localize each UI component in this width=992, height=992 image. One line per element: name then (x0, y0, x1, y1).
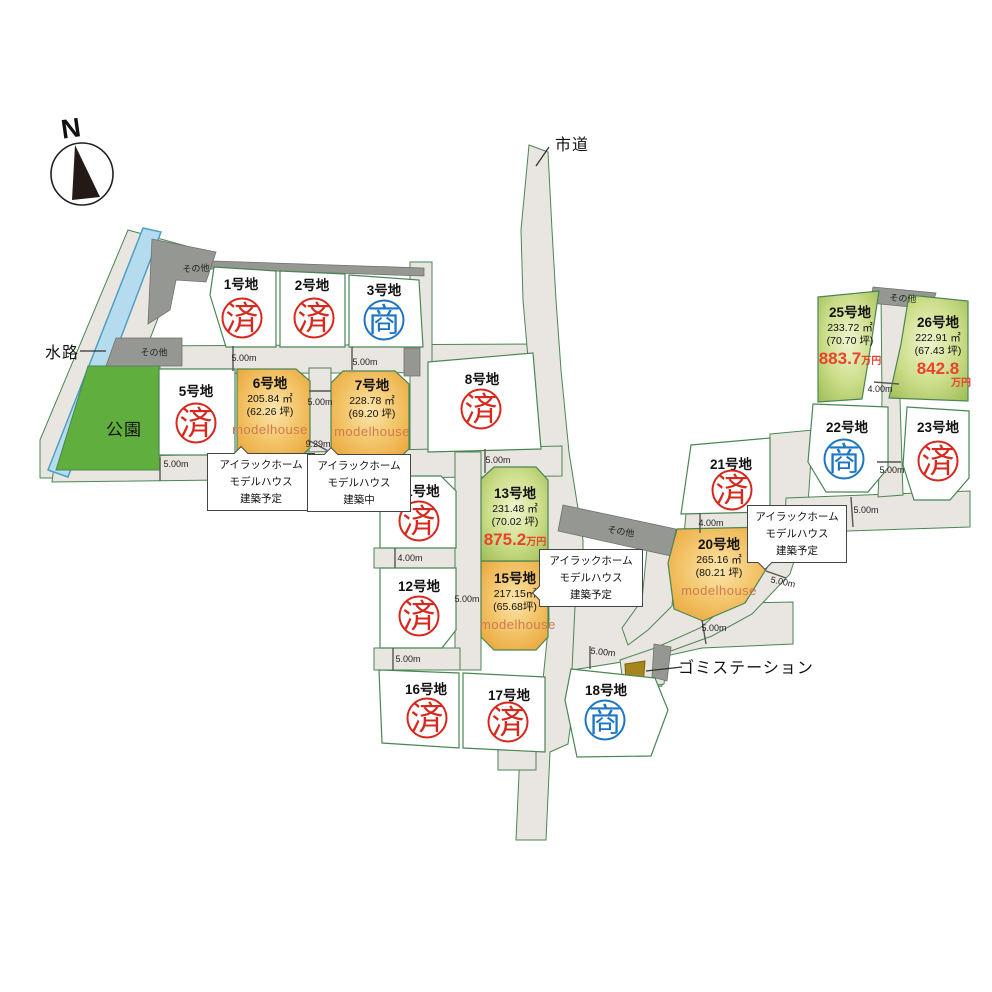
lot-18-label: 18号地 (585, 683, 627, 700)
lot-12-status-stamp: 済 (399, 596, 440, 637)
lot-1-status-stamp: 済 (222, 298, 263, 339)
modelhouse-text: modelhouse (677, 583, 761, 599)
lot-16-label: 16号地 (405, 682, 447, 699)
measurement-label: 5.00m (231, 353, 256, 363)
gray-area-lot8 (404, 348, 420, 376)
other-area-label: その他 (889, 291, 917, 306)
measurement-label: 5.00m (395, 654, 420, 664)
measurement-label: 4.00m (867, 384, 892, 394)
measurement-label: 9.29m (305, 439, 330, 449)
lot-23-status-stamp: 済 (918, 441, 959, 482)
callout-lot15: アイラックホーム モデルハウス 建築予定 (539, 549, 643, 607)
measurement-label: 5.00m (853, 505, 878, 515)
lot-2-status-stamp: 済 (294, 298, 335, 339)
lot-18-status-stamp: 商 (585, 700, 626, 741)
callout-lot20: アイラックホーム モデルハウス 建築予定 (747, 505, 847, 563)
lot-23-label: 23号地 (917, 420, 959, 437)
measurement-label: 4.00m (397, 553, 422, 563)
lot-8-label: 8号地 (465, 372, 500, 389)
modelhouse-text: modelhouse (230, 422, 310, 438)
city-road-label: 市道 (555, 131, 589, 155)
lot-5-status-stamp: 済 (176, 403, 217, 444)
lot-13-details: 13号地 231.48 ㎡ (70.02 坪) 875.2万円 (480, 486, 550, 549)
measurement-label: 5.00m (454, 594, 479, 604)
lot-3-label: 3号地 (367, 283, 402, 300)
compass-north-label: N (59, 112, 83, 145)
measurement-label: 5.00m (352, 357, 377, 367)
callout-lot6: アイラックホーム モデルハウス 建築予定 (207, 453, 315, 511)
lot-22-status-stamp: 商 (824, 439, 865, 480)
lot-7-details: 7号地 228.78 ㎡ (69.20 坪) modelhouse (332, 378, 412, 440)
lot-1-label: 1号地 (224, 277, 259, 294)
measurement-label: 5.00m (307, 397, 332, 407)
measurement-label: 5.00m (485, 455, 510, 465)
lot-3-status-stamp: 商 (364, 300, 405, 341)
road-center-vertical (455, 452, 481, 670)
other-area-label: その他 (182, 261, 210, 275)
lot-2-label: 2号地 (295, 278, 330, 295)
lot-12-label: 12号地 (398, 579, 440, 596)
lot-16-status-stamp: 済 (407, 698, 448, 739)
garbage-station-label: ゴミステーション (678, 654, 814, 678)
lot-26-price: 842.8万円 (905, 360, 971, 389)
measurement-label: 4.00m (698, 518, 723, 528)
gray-area-garbage (652, 644, 671, 681)
gray-area-topleft (148, 239, 216, 324)
other-area-label: その他 (140, 346, 167, 359)
measurement-label: 5.00m (879, 465, 904, 475)
modelhouse-text: modelhouse (480, 617, 550, 633)
measurement-label: 5.00m (701, 623, 726, 633)
lot-22-label: 22号地 (826, 420, 868, 437)
lot-13-price: 875.2万円 (480, 531, 550, 549)
park-label: 公園 (106, 416, 142, 441)
lot-5-label: 5号地 (179, 384, 214, 401)
modelhouse-text: modelhouse (332, 424, 412, 440)
lot-26-details: 26号地 222.91 ㎡ (67.43 坪) 842.8万円 (905, 315, 971, 389)
lot-25-details: 25号地 233.72 ㎡ (70.70 坪) 883.7万円 (815, 305, 885, 368)
lot-6-details: 6号地 205.84 ㎡ (62.26 坪) modelhouse (230, 376, 310, 438)
lot-17-status-stamp: 済 (488, 702, 529, 743)
waterway-label: 水路 (45, 339, 79, 363)
lot-25-price: 883.7万円 (815, 350, 885, 368)
measurement-label: 5.00m (163, 459, 188, 469)
lot-subdivision-map: N 水路 市道 公園 ゴミステーション その他 その他 その他 その他 1号地 … (0, 0, 992, 992)
compass-icon (51, 143, 113, 205)
lot-8-status-stamp: 済 (461, 389, 502, 430)
callout-lot7: アイラックホーム モデルハウス 建築中 (307, 454, 411, 512)
